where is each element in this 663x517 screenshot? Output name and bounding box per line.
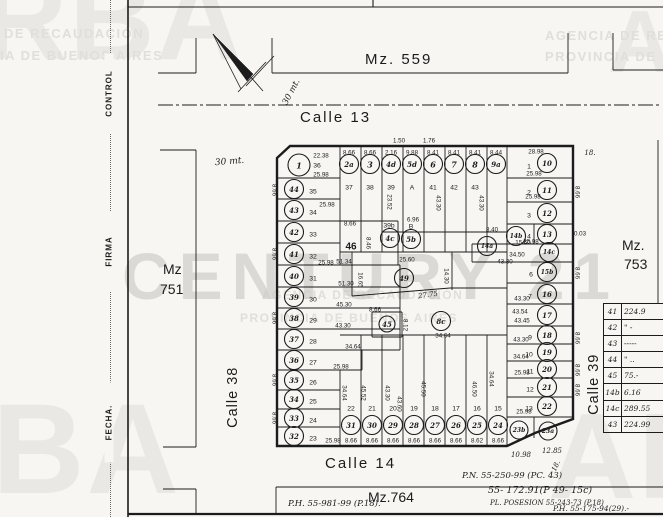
- parcel-number-14c: 14c: [543, 249, 555, 256]
- lot-number: 29: [309, 318, 317, 325]
- measurement: 0.03: [574, 231, 587, 238]
- lot-number: 12: [526, 387, 534, 394]
- measurement: 43.30: [478, 195, 485, 211]
- measurement: 8.66: [271, 248, 278, 261]
- table-parcel-value: -----: [622, 339, 663, 348]
- table-parcel-id: 41: [604, 304, 622, 319]
- measurement: 8.41: [469, 150, 482, 157]
- parcel-number-11: 11: [542, 186, 552, 195]
- lot-number: 30: [309, 297, 317, 304]
- measurement: 8.66: [574, 364, 581, 377]
- measurement: 34.64: [435, 333, 451, 340]
- lot-number: 1: [527, 164, 531, 171]
- parcel-number-3: 3: [367, 160, 373, 170]
- table-row: 41224.9: [604, 304, 663, 319]
- measurement: 25.98: [325, 438, 341, 445]
- parcel-number-49: 49: [399, 274, 409, 283]
- lot-number: 38: [366, 185, 374, 192]
- parcel-number-18: 18: [542, 331, 552, 340]
- measurement: 10.98: [511, 451, 532, 459]
- measurement: 15.60: [515, 240, 531, 247]
- parcel-number-7: 7: [451, 160, 457, 170]
- table-row: 14b6.16: [604, 383, 663, 399]
- measurement: 12.85: [542, 447, 563, 455]
- lot-number: 19: [410, 406, 418, 413]
- measurement: 23.52: [386, 194, 393, 210]
- lot-number: 21: [368, 406, 376, 413]
- parcel-number-22: 22: [541, 402, 552, 411]
- measurement: 34.64: [488, 371, 495, 387]
- measurement: 25.98: [319, 202, 335, 209]
- measurement: 6.96: [407, 217, 420, 224]
- measurement: 51.30: [338, 281, 354, 288]
- parcel-number-5d: 5d: [407, 160, 417, 169]
- measurement: 8.40: [486, 227, 499, 234]
- lot-number: 16: [473, 406, 481, 413]
- parcel-number-45: 45: [382, 320, 392, 329]
- measurement: 8.66: [574, 186, 581, 199]
- measurement: 8.66: [344, 221, 357, 228]
- table-parcel-id: 42: [604, 320, 622, 335]
- calle13-label: Calle 13: [300, 110, 371, 125]
- measurement: 43.60: [396, 396, 403, 412]
- measurement: 8.66: [345, 438, 358, 445]
- calle39-label: Calle 39: [587, 344, 602, 424]
- parcel-number-27: 27: [429, 421, 440, 430]
- lot-number: 22: [347, 406, 355, 413]
- table-parcel-id: 43: [604, 417, 622, 432]
- lot-number: 31: [309, 276, 317, 283]
- table-row: 4575.-: [604, 367, 663, 383]
- table-row: 43-----: [604, 335, 663, 351]
- parcel-number-41: 41: [289, 250, 299, 259]
- parcel-number-44: 44: [289, 185, 299, 194]
- lot-number: 25: [309, 399, 317, 406]
- measurement: 14.30: [443, 268, 450, 284]
- calle38-label: Calle 38: [226, 357, 241, 437]
- parcel-number-40: 40: [289, 272, 299, 281]
- mz753-label: Mz.: [622, 238, 645, 252]
- measurement: 8.66: [364, 150, 377, 157]
- lot-number: 15: [494, 406, 502, 413]
- parcel-number-36: 36: [289, 356, 299, 365]
- measurement: 43.30: [514, 296, 530, 303]
- parcel-number-4d: 4d: [386, 160, 396, 169]
- lot-number: 46: [345, 242, 357, 253]
- measurement: 45.30: [336, 302, 352, 309]
- parcel-number-38: 38: [289, 314, 299, 323]
- parcel-number-23b: 23b: [512, 427, 526, 434]
- parcel-number-31: 31: [346, 421, 356, 430]
- parcel-number-26: 26: [450, 421, 461, 430]
- calle14-label: Calle 14: [325, 456, 396, 471]
- parcel-number-43: 43: [289, 206, 299, 215]
- parcel-number-21: 21: [541, 383, 552, 392]
- parcel-number-37: 37: [289, 335, 299, 344]
- measurement: 8.66: [271, 412, 278, 425]
- parcel-number-23a: 23a: [541, 428, 554, 435]
- lot-number: 6: [529, 272, 533, 279]
- lot-number: 33: [309, 232, 317, 239]
- measurement: 8.66: [429, 438, 442, 445]
- measurement: 34.64: [341, 385, 348, 401]
- measurement: 43.30: [335, 323, 351, 330]
- parcel-number-19: 19: [542, 348, 552, 357]
- measurement: 8.66: [450, 438, 463, 445]
- lot-number: 3: [527, 213, 531, 220]
- lot-number: 23: [309, 436, 317, 443]
- table-parcel-value: 224.9: [622, 307, 663, 316]
- table-parcel-value: 75.-: [622, 371, 663, 380]
- parcel-number-24: 24: [492, 421, 503, 430]
- measurement: 8.44: [490, 150, 503, 157]
- plan-ref-pn: P.N. 55-250-99 (PC. 43): [462, 472, 562, 481]
- measurement: 16.65: [357, 272, 364, 288]
- measurement: 8.62: [471, 438, 484, 445]
- table-row: 43224.99: [604, 416, 663, 432]
- measurement: 8.46: [365, 237, 372, 250]
- measurement: 25.98: [525, 194, 541, 201]
- measurement: 18.: [584, 149, 595, 157]
- measurement: 8.41: [448, 150, 461, 157]
- table-parcel-id: 45: [604, 368, 622, 383]
- lot-number: 42: [450, 185, 458, 192]
- parcel-number-8: 8: [472, 160, 478, 170]
- plan-ref-ph-right: P.H. 55-175-94(29).-: [553, 505, 629, 513]
- table-parcel-value: 289.55: [622, 404, 663, 413]
- parcel-number-9a: 9a: [491, 160, 501, 169]
- measurement: 8.66: [574, 384, 581, 397]
- table-parcel-id: 14b: [604, 384, 622, 399]
- measurement: 25.98: [318, 260, 334, 267]
- measurement: 22.38: [313, 153, 329, 160]
- measurement: 1.50: [393, 138, 406, 145]
- parcel-number-14a: 14a: [481, 243, 493, 250]
- parcel-number-17: 17: [542, 311, 552, 320]
- lot-number: 36: [313, 163, 321, 170]
- parcel-number-25: 25: [471, 421, 482, 430]
- measurement: 43.30: [435, 195, 442, 211]
- table-parcel-value: 224.99: [622, 420, 663, 429]
- measurement: 1.76: [423, 138, 436, 145]
- parcel-number-13: 13: [542, 230, 552, 239]
- lot-number: 43: [471, 185, 479, 192]
- parcel-number-6: 6: [430, 160, 436, 170]
- measurement: 34.50: [509, 252, 525, 259]
- measurement: 28.98: [528, 149, 544, 156]
- table-parcel-id: 14c: [604, 401, 622, 416]
- measurement: 25.98: [514, 370, 530, 377]
- parcel-number-4c: 4c: [385, 234, 395, 243]
- lot-number: 34: [309, 210, 317, 217]
- measurement: 9.88: [406, 150, 419, 157]
- measurement: 45.50: [420, 381, 427, 397]
- table-parcel-id: 43: [604, 336, 622, 351]
- measurement: 45.52: [360, 385, 367, 401]
- scanned-cadastral-plan: RBA BA AR A DE RECAUDACIÓN IA DE BUENOS …: [0, 0, 663, 517]
- parcel-number-15b: 15b: [541, 269, 554, 276]
- parcel-number-42: 42: [289, 228, 299, 237]
- plan-ref-1: 55- 172.91(P 49- 15c): [488, 486, 592, 496]
- parcel-number-1: 1: [296, 161, 302, 171]
- table-parcel-id: 44: [604, 352, 622, 367]
- measurement: 8.66: [408, 438, 421, 445]
- parcel-number-34: 34: [289, 395, 299, 404]
- measurement: 8.66: [271, 312, 278, 325]
- lot-number: A: [410, 185, 415, 192]
- lot-number: 18: [431, 406, 439, 413]
- parcel-number-35: 35: [289, 376, 299, 385]
- lot-number: 26: [309, 380, 317, 387]
- measurement: 51.34: [336, 259, 352, 266]
- measurement: 25.98: [333, 364, 349, 371]
- measurement: 25.98: [526, 171, 542, 178]
- lot-number: 35: [309, 189, 317, 196]
- parcel-number-16: 16: [542, 290, 552, 299]
- measurement: 2.16: [385, 150, 398, 157]
- lot-number: 24: [309, 418, 317, 425]
- table-parcel-value: 6.16: [622, 388, 663, 397]
- table-row: 42" -: [604, 319, 663, 335]
- measurement: 46.50: [471, 381, 478, 397]
- lot-number: 41: [429, 185, 437, 192]
- lot-number: 39b: [383, 223, 395, 230]
- measurement: 8.66: [366, 438, 379, 445]
- measurement: 34.64: [345, 344, 361, 351]
- measurement: 27.75: [417, 290, 439, 301]
- parcel-number-8c: 8c: [436, 317, 446, 326]
- plan-ref-ph-left: P.H. 55-981-99 (P.18).: [288, 500, 381, 509]
- measurement: 8.66: [271, 374, 278, 387]
- measurement: 43.45: [514, 318, 530, 325]
- parcel-number-5b: 5b: [406, 235, 416, 244]
- parcel-value-table: 41224.942" -43-----44" ..4575.-14b6.1614…: [603, 303, 663, 433]
- measurement: 34.64: [513, 354, 529, 361]
- mz559-label: Mz. 559: [365, 52, 432, 67]
- parcel-number-32: 32: [289, 432, 299, 441]
- parcel-number-39: 39: [289, 293, 299, 302]
- lot-number: 32: [309, 254, 317, 261]
- parcel-number-10: 10: [542, 159, 552, 168]
- measurement: 8.66: [574, 332, 581, 345]
- measurement: 43.30: [384, 385, 391, 401]
- table-row: 44" ..: [604, 351, 663, 367]
- measurement: 8.66: [369, 307, 382, 314]
- measurement: 43.30: [513, 337, 529, 344]
- mz753-number: 753: [624, 257, 647, 271]
- parcel-number-20: 20: [541, 365, 552, 374]
- measurement: 25.60: [399, 257, 415, 264]
- measurement: 43.30: [497, 259, 513, 266]
- lot-number: 28: [309, 339, 317, 346]
- lot-number: 27: [309, 360, 317, 367]
- parcel-number-12: 12: [542, 209, 552, 218]
- mz751-label: Mz: [163, 262, 182, 276]
- lot-number: B: [409, 224, 414, 231]
- measurement: 25.98: [516, 409, 532, 416]
- lot-number: 17: [452, 406, 460, 413]
- measurement: 8.66: [343, 150, 356, 157]
- measurement: 8.66: [492, 438, 505, 445]
- measurement: 25.98: [313, 172, 329, 179]
- lot-number: 37: [345, 185, 353, 192]
- measurement: 8.66: [574, 267, 581, 280]
- parcel-number-2a: 2a: [343, 160, 354, 169]
- table-row: 14c289.55: [604, 400, 663, 416]
- measurement: 8.12: [402, 319, 409, 332]
- measurement: 8.66: [387, 438, 400, 445]
- parcel-number-33: 33: [289, 414, 299, 423]
- table-parcel-value: " ..: [622, 355, 663, 364]
- mz751-number: 751: [160, 282, 183, 296]
- parcel-number-28: 28: [408, 421, 419, 430]
- measurement: 43.54: [512, 309, 528, 316]
- cadastral-map-drawing: 1444342414039383736353433322a34d5d6789a1…: [0, 0, 663, 517]
- lot-number: 39: [387, 185, 395, 192]
- measurement: 8.66: [271, 184, 278, 197]
- table-parcel-value: " -: [622, 323, 663, 332]
- parcel-number-30: 30: [367, 421, 377, 430]
- measurement: 8.41: [427, 150, 440, 157]
- parcel-number-29: 29: [387, 421, 398, 430]
